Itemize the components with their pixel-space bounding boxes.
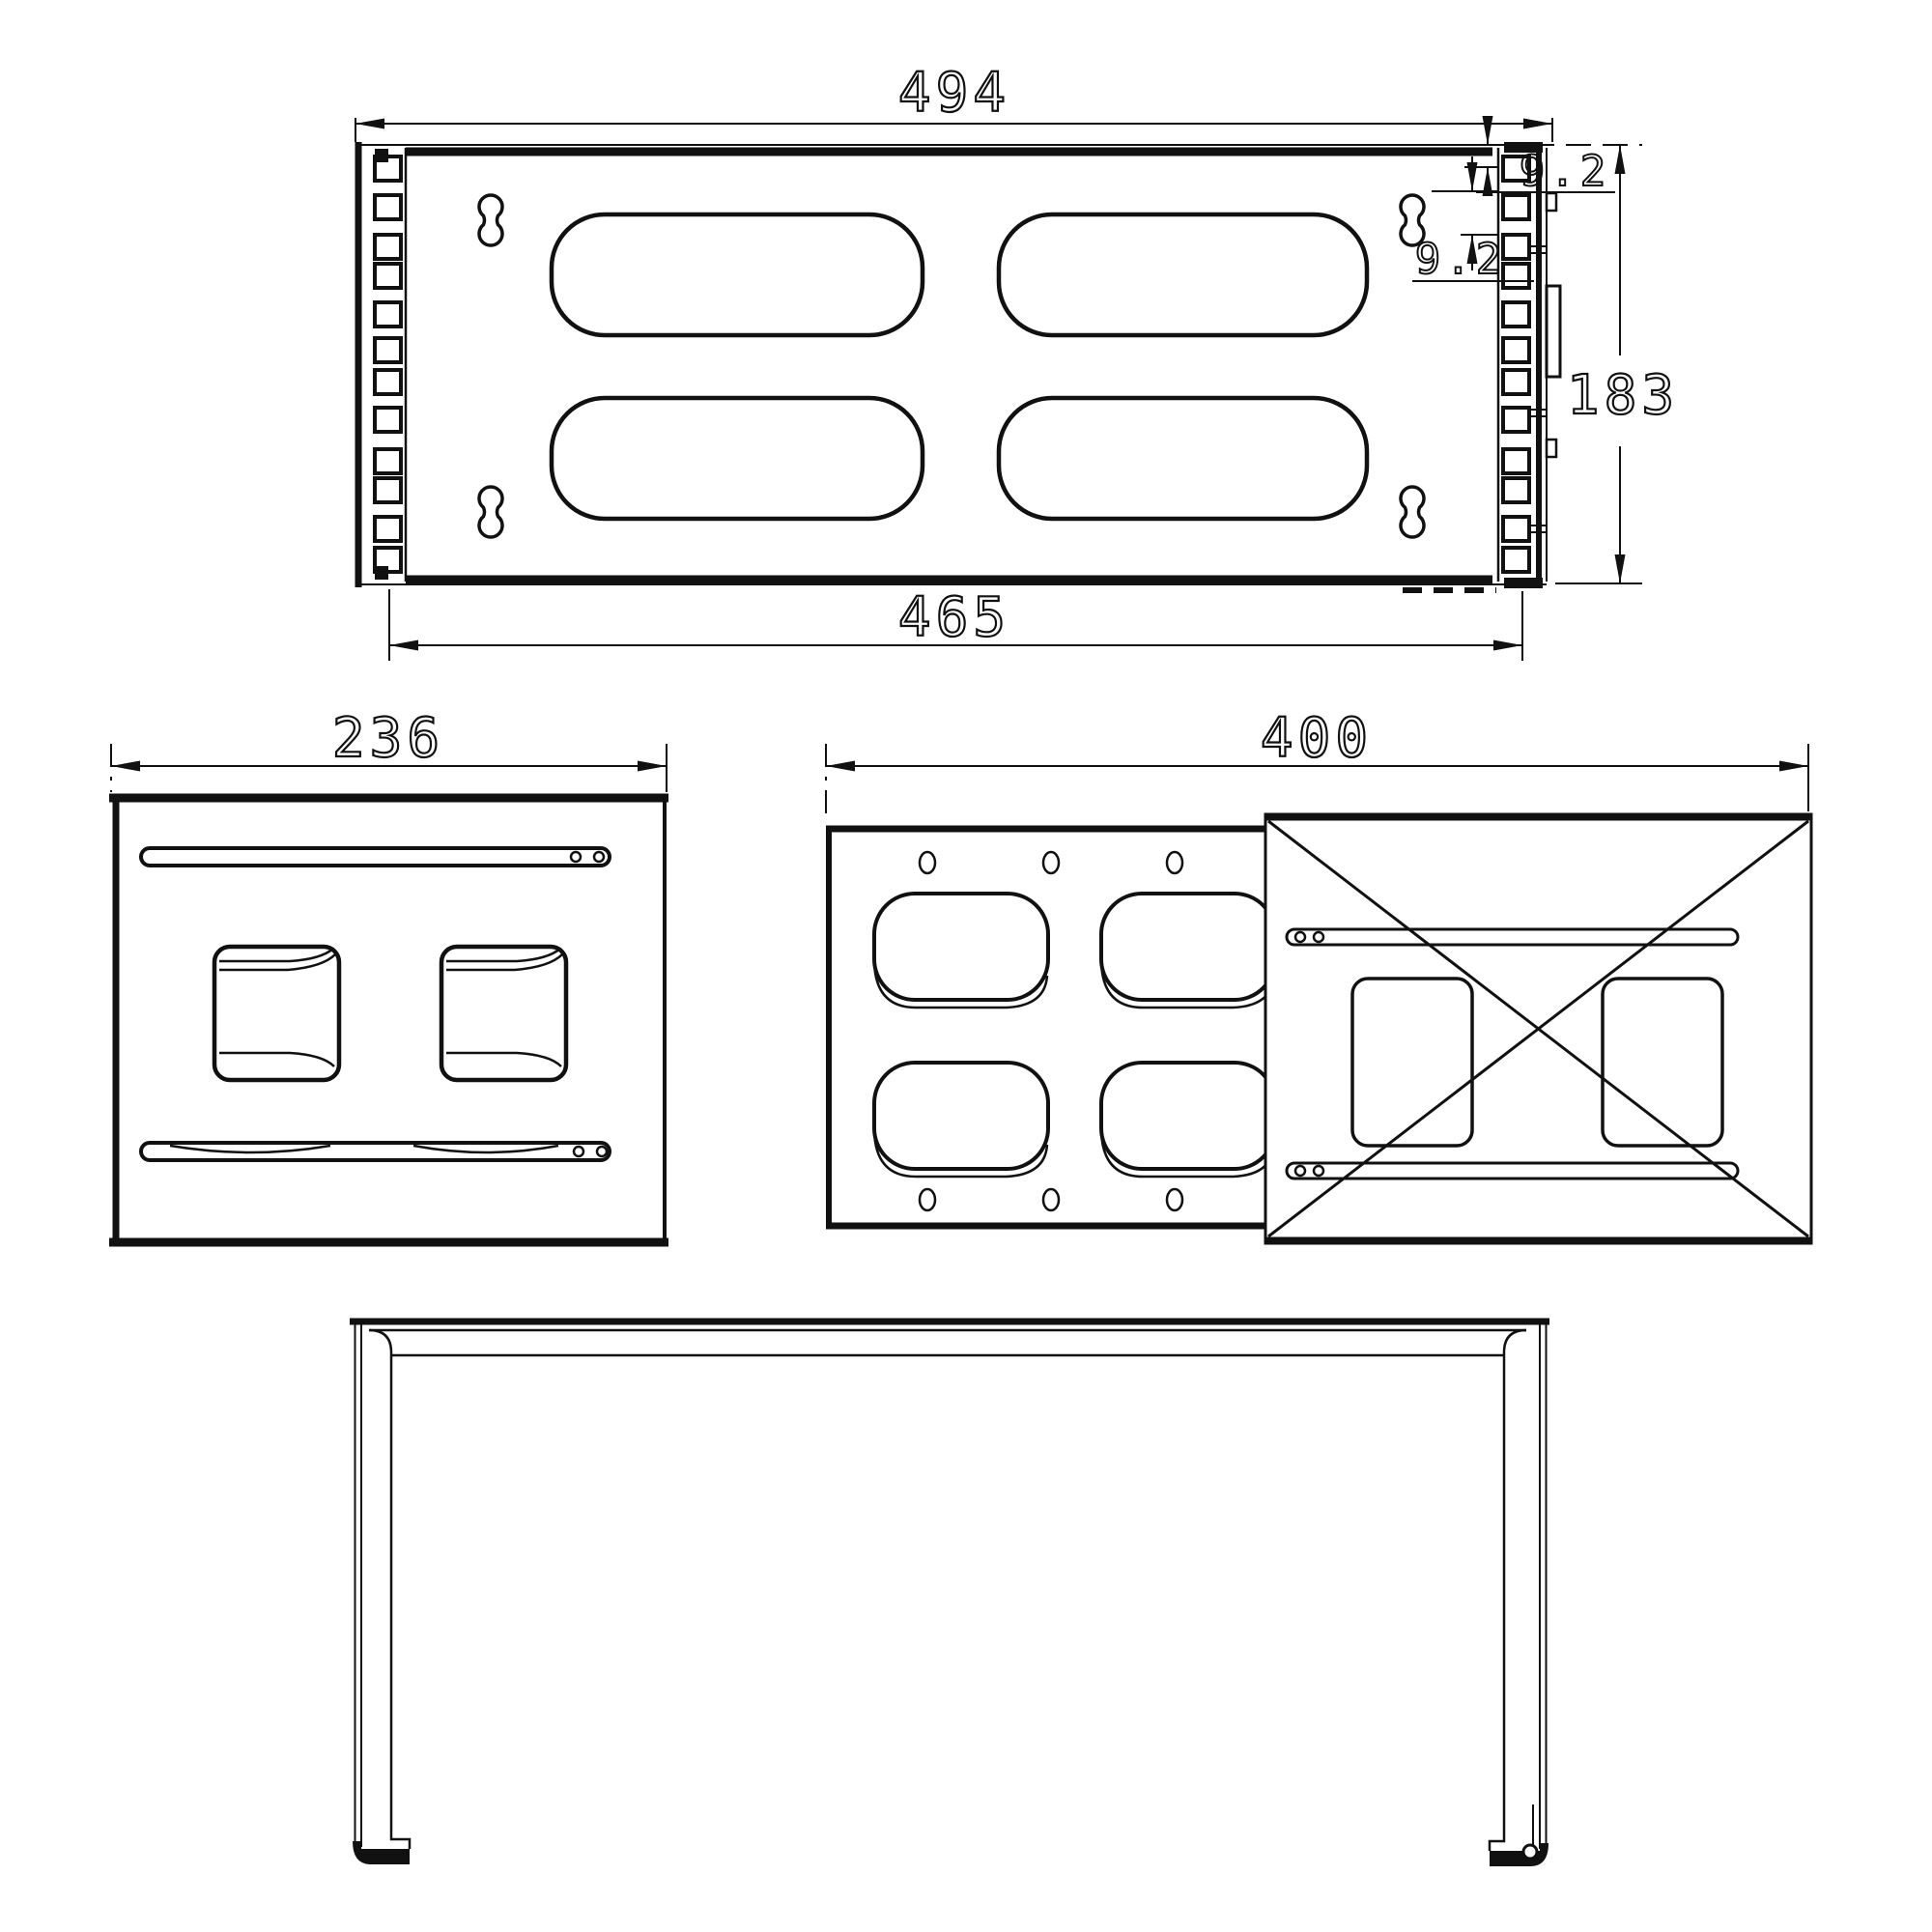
dim-494-arrow-right xyxy=(1523,119,1552,129)
dim-183-arrow-bottom xyxy=(1615,554,1626,583)
oval-cutout-top-right xyxy=(999,214,1367,335)
dim-400-label: 400 xyxy=(1261,707,1373,770)
top-view: 494 465 183 9.2 xyxy=(355,62,1679,661)
crossed-reference-panel xyxy=(1265,814,1811,1243)
rail-right-bottom-weld-tab xyxy=(1504,578,1543,588)
side-square-left-fold-lines xyxy=(219,949,335,1066)
keyhole-slots xyxy=(479,195,1424,537)
front-left-leg xyxy=(353,1321,410,1864)
keyhole-slot-bottom-left xyxy=(479,487,502,537)
rail-left-bottom-weld-tab xyxy=(375,566,388,580)
rail-right-square-holes xyxy=(1503,156,1529,572)
rail-right-latch-small-bottom xyxy=(1547,440,1556,457)
oval-cutout-bottom-right xyxy=(999,398,1367,519)
back-view: 400 xyxy=(826,707,1811,1243)
dim-92a-arrow-down xyxy=(1483,116,1493,145)
technical-drawing-canvas: 494 465 183 9.2 xyxy=(0,0,1932,1932)
rail-left-square-holes xyxy=(375,156,401,572)
side-bottom-slot-waves xyxy=(170,1146,558,1152)
oval-cutout-bottom-left xyxy=(552,398,923,519)
dim-236-arrow-right xyxy=(638,761,667,772)
rail-left-top-weld-tab xyxy=(375,149,388,162)
right-foot-hole xyxy=(1523,1845,1537,1859)
front-view xyxy=(350,1321,1549,1866)
back-oval-top-right xyxy=(1101,894,1275,1000)
dim-183-label: 183 xyxy=(1567,364,1679,427)
back-oval-bottom-right xyxy=(1101,1063,1275,1169)
keyhole-slot-top-left xyxy=(479,195,502,245)
dim-465-arrow-left xyxy=(389,640,418,651)
screw-hole xyxy=(920,852,935,873)
dim-236-arrow-left xyxy=(111,761,140,772)
side-view: 236 xyxy=(109,707,668,1246)
oval-cutout-top-left xyxy=(552,214,923,335)
bracket-drawing-svg: 494 465 183 9.2 xyxy=(0,0,1932,1932)
left-foot xyxy=(353,1841,410,1864)
back-oval-bottom-left xyxy=(874,1063,1048,1169)
side-square-right-fold-lines xyxy=(446,949,562,1066)
side-top-slot xyxy=(141,848,610,866)
dim-mount-width: 465 xyxy=(389,586,1522,661)
screw-hole xyxy=(1167,1189,1182,1210)
screw-hole xyxy=(920,1189,935,1210)
dim-overall-width: 494 xyxy=(355,62,1552,142)
rail-right-latch-large xyxy=(1547,286,1560,377)
dim-494-arrow-left xyxy=(355,119,384,129)
dim-494-label: 494 xyxy=(898,62,1010,125)
dim-92b-label: 9.2 xyxy=(1415,235,1506,284)
side-square-cutout-right xyxy=(441,947,566,1080)
side-top-slot-hole-1 xyxy=(571,852,581,862)
side-bottom-slot-hole-2 xyxy=(597,1147,607,1156)
dim-back-depth: 400 xyxy=(826,707,1808,823)
dim-400-arrow-left xyxy=(826,761,855,772)
drawing-root-group: 494 465 183 9.2 xyxy=(109,62,1811,1866)
back-plate-screw-holes xyxy=(920,852,1182,1210)
dim-400-arrow-right xyxy=(1779,761,1808,772)
side-bottom-slot-hole-1 xyxy=(574,1147,583,1156)
dim-465-arrow-right xyxy=(1493,640,1522,651)
dim-side-depth: 236 xyxy=(111,707,667,792)
dim-92a-label: 9.2 xyxy=(1520,147,1610,196)
rack-rail-right xyxy=(1403,142,1560,590)
dim-183-arrow-top xyxy=(1615,145,1626,174)
screw-hole xyxy=(1043,852,1059,873)
rack-rail-left xyxy=(358,142,406,587)
side-top-slot-hole-2 xyxy=(594,852,604,862)
dim-465-label: 465 xyxy=(898,586,1010,649)
dim-92b-arrow-down xyxy=(1467,162,1478,191)
back-oval-top-left xyxy=(874,894,1048,1000)
dim-236-label: 236 xyxy=(332,707,444,770)
back-plate xyxy=(826,826,1275,1229)
right-leg-inner-line xyxy=(1490,1330,1526,1851)
screw-hole xyxy=(1167,852,1182,873)
front-right-leg xyxy=(1490,1321,1548,1866)
keyhole-slot-bottom-right xyxy=(1401,487,1424,537)
cable-cutouts-top-view xyxy=(552,214,1367,519)
screw-hole xyxy=(1043,1189,1059,1210)
side-square-cutout-left xyxy=(214,947,339,1080)
left-leg-inner-line xyxy=(369,1330,410,1849)
